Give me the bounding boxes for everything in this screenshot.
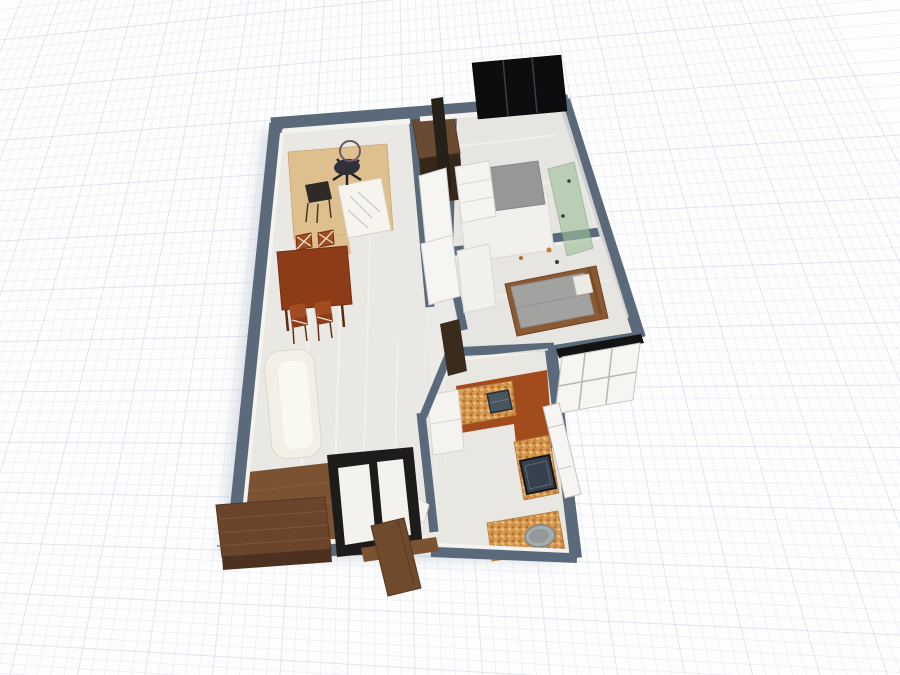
scene-svg — [0, 0, 900, 675]
partition-white[interactable] — [457, 244, 496, 313]
chair-leg — [293, 328, 294, 344]
dining-table[interactable] — [277, 246, 352, 310]
drawing-board[interactable] — [338, 178, 391, 238]
floorplan-3d-canvas[interactable] — [0, 0, 900, 675]
desk-side-chair[interactable] — [305, 181, 332, 203]
chair-leg — [318, 325, 319, 341]
glass-door-handle — [567, 179, 571, 183]
sideboard-top[interactable] — [216, 497, 331, 557]
building — [216, 55, 644, 596]
window-panel-black[interactable] — [472, 55, 567, 119]
floor-clutter — [519, 256, 523, 260]
stove[interactable] — [520, 455, 556, 494]
floor-clutter — [555, 260, 559, 264]
floor-clutter — [547, 248, 552, 253]
glass-door-handle — [561, 214, 565, 218]
closet-white[interactable] — [455, 161, 496, 223]
chair-leg — [317, 204, 318, 223]
